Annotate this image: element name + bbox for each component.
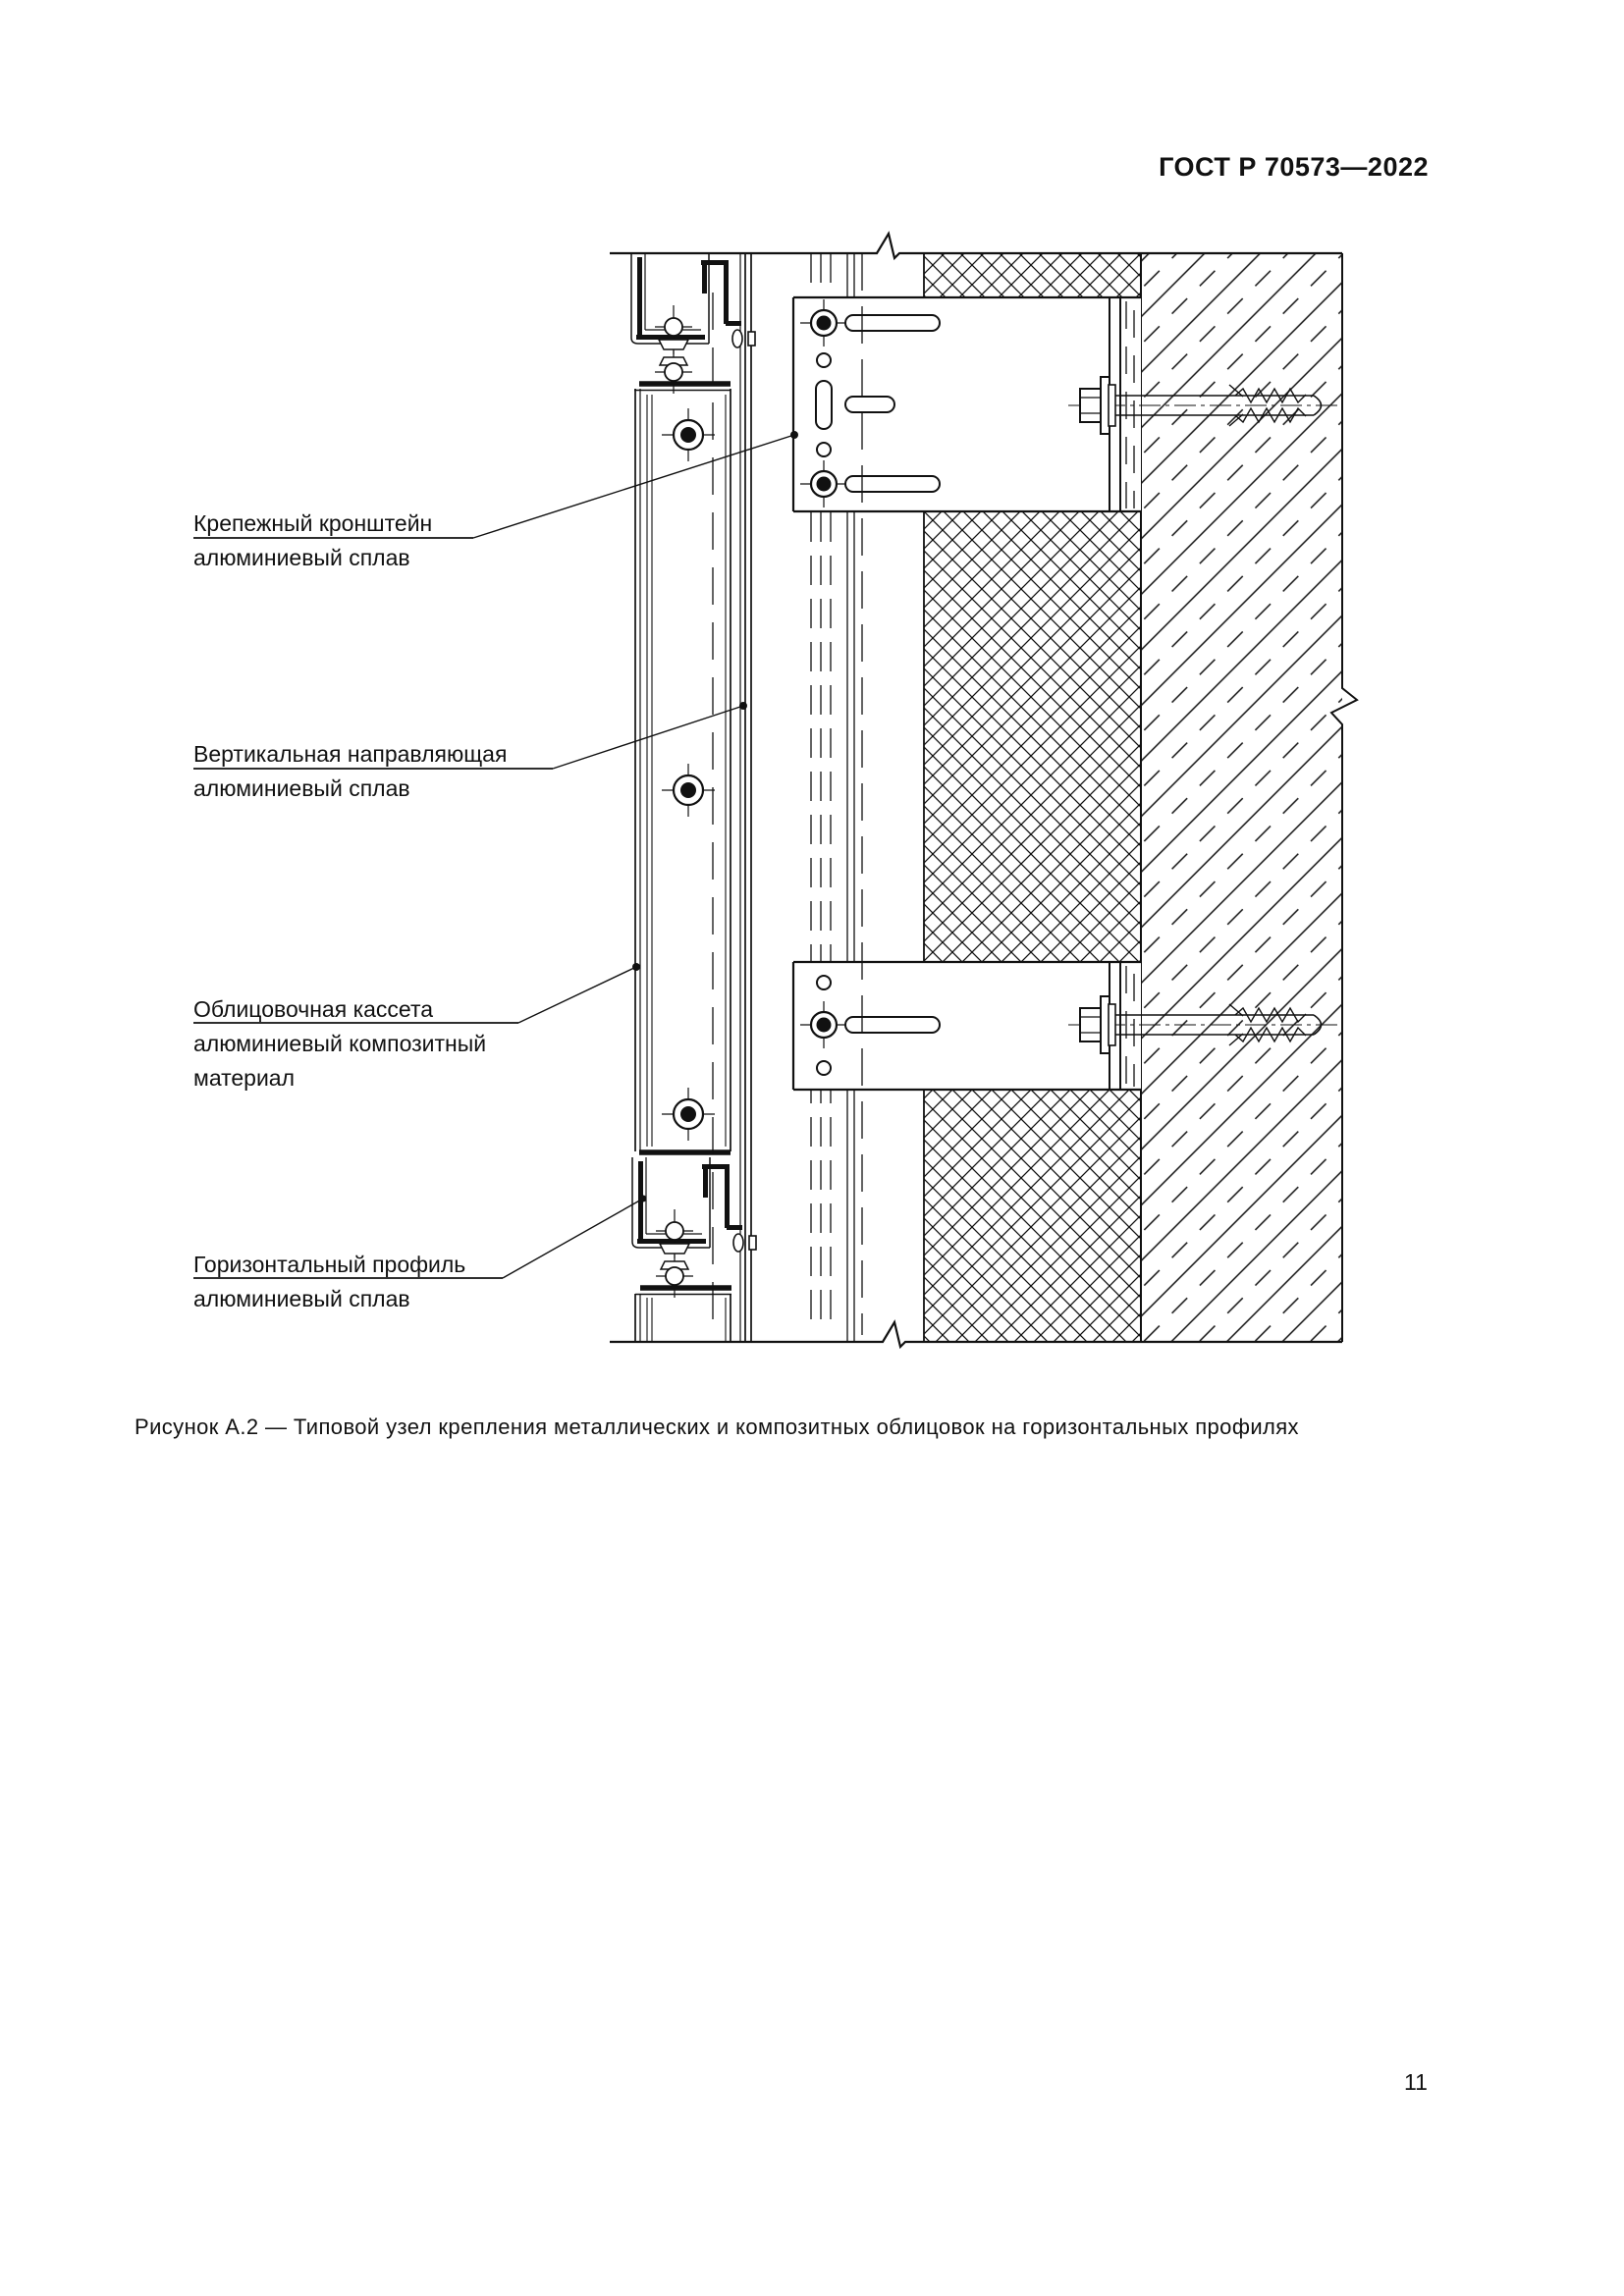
document-page: ГОСТ Р 70573—2022 [0, 0, 1624, 2296]
horizontal-profile-bottom [632, 1157, 756, 1298]
label-cassette: Облицовочная кассета алюминиевый компози… [193, 992, 486, 1095]
vertical-rail [740, 253, 751, 1342]
figure-caption: Рисунок А.2 — Типовой узел крепления мет… [135, 1415, 1299, 1440]
label-vertical-rail: Вертикальная направляющая алюминиевый сп… [193, 737, 507, 806]
label-line: Горизонтальный профиль [193, 1248, 465, 1282]
label-line: алюминиевый композитный [193, 1027, 486, 1061]
label-horizontal-profile: Горизонтальный профиль алюминиевый сплав [193, 1248, 465, 1316]
label-line: алюминиевый сплав [193, 772, 507, 806]
bracket-slot [845, 1017, 940, 1033]
label-line: Крепежный кронштейн [193, 507, 432, 541]
label-line: Вертикальная направляющая [193, 737, 507, 772]
label-line: материал [193, 1061, 486, 1095]
label-line: алюминиевый сплав [193, 541, 432, 575]
bracket-slot [845, 476, 940, 492]
bracket-slot [845, 315, 940, 331]
label-fixing-bracket: Крепежный кронштейн алюминиевый сплав [193, 507, 432, 575]
horizontal-profile-top [631, 253, 755, 394]
facade-node-drawing [0, 0, 1624, 2296]
label-line: Облицовочная кассета [193, 992, 486, 1027]
cladding-cassette [635, 293, 731, 1342]
concrete-wall-section [1141, 253, 1357, 1342]
label-line: алюминиевый сплав [193, 1282, 465, 1316]
page-number: 11 [1404, 2069, 1428, 2096]
